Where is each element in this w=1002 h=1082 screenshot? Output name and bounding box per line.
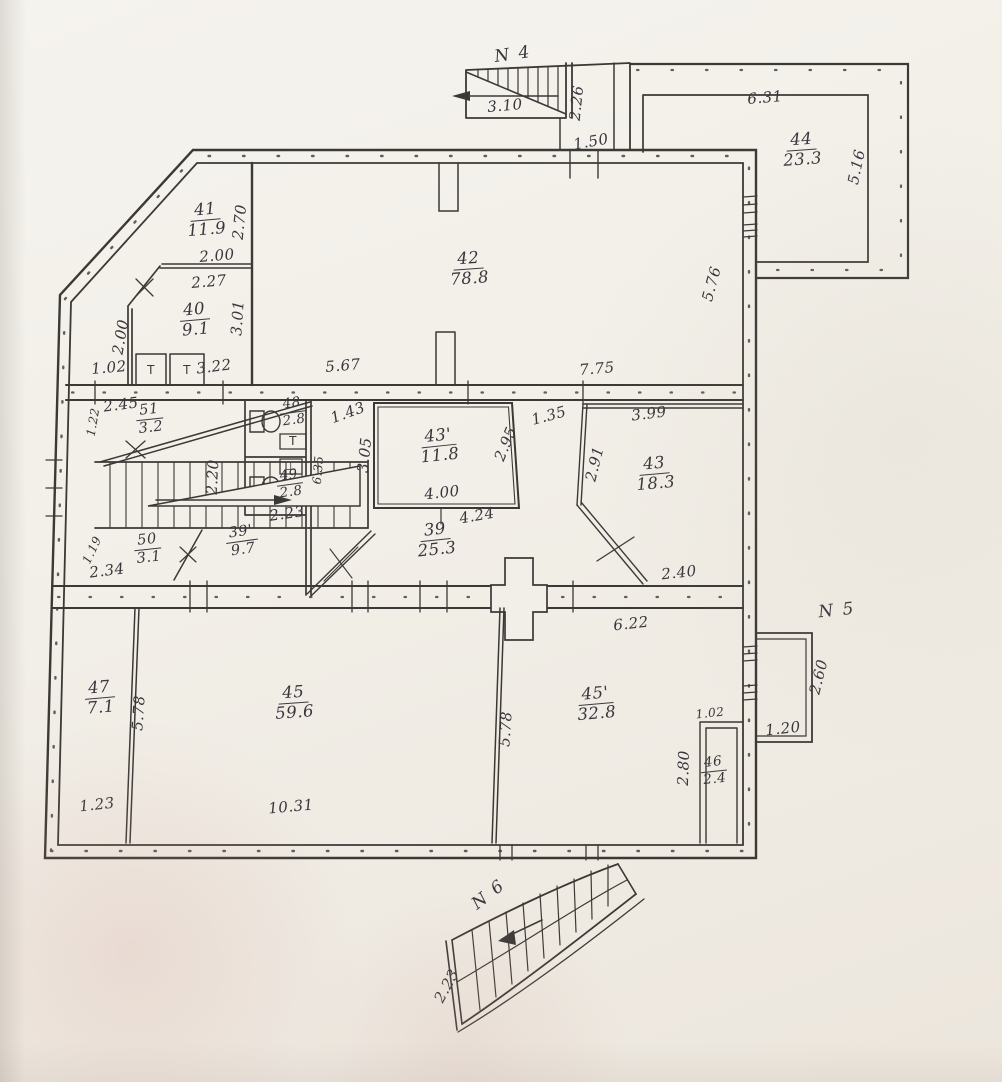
- dim-label: 6.31: [747, 89, 784, 107]
- dim-label: 4.00: [424, 484, 461, 503]
- room-area: 23.3: [783, 150, 823, 171]
- room-area: 2.8: [282, 411, 307, 429]
- dim-label: 3.01: [229, 300, 246, 336]
- dim-label: 6.22: [613, 615, 650, 634]
- vent-tee-icon: ⊥: [286, 460, 297, 472]
- room-label-45p: 45'32.8: [575, 683, 617, 725]
- dim-label: 5.78: [497, 711, 514, 747]
- dim-label: 10.31: [268, 798, 315, 817]
- dim-label: 2.34: [89, 561, 126, 580]
- room-label-39p: 39'9.7: [224, 522, 260, 561]
- stair-4: [452, 63, 630, 178]
- room-area: 9.1: [181, 320, 210, 341]
- vent-t-icon: T: [147, 364, 155, 376]
- dim-label: 1.02: [695, 706, 725, 721]
- room-label-39: 3925.3: [415, 519, 458, 562]
- room-label-51: 513.2: [135, 400, 166, 437]
- room-area: 59.6: [275, 703, 315, 724]
- room-label-48: 482.8: [278, 394, 308, 430]
- room-area: 2.4: [703, 771, 727, 788]
- room-43-walls: [577, 404, 743, 584]
- dim-label: 2.20: [205, 459, 222, 495]
- dim-label: 1.20: [765, 720, 802, 739]
- room-label-43p: 43'11.8: [418, 425, 461, 468]
- upper-corridor: [66, 354, 743, 404]
- floorplan-page: N 4 N 5 N 6 4111.9 409.1 4278.8 4423.3 5…: [0, 0, 1002, 1082]
- room-area: 2.8: [279, 483, 304, 501]
- vent-t-icon: T: [289, 435, 297, 447]
- dim-label: 5.67: [325, 357, 362, 375]
- room-area: 32.8: [577, 703, 617, 725]
- room-area: 3.1: [136, 549, 162, 568]
- dim-label: 2.00: [199, 247, 236, 265]
- room-label-47: 477.1: [83, 677, 116, 718]
- bottom-rooms-walls: [126, 608, 757, 843]
- room-label-46: 462.4: [699, 754, 728, 789]
- dim-label: 7.75: [579, 360, 616, 378]
- vent-t-icon: T: [183, 364, 191, 376]
- dim-label: 2.40: [661, 564, 698, 583]
- dim-label: 3.99: [631, 404, 668, 423]
- room-area: 18.3: [636, 473, 676, 495]
- room-label-40: 409.1: [178, 299, 211, 340]
- room-label-42: 4278.8: [448, 248, 489, 290]
- dim-label: 6.35: [311, 455, 325, 485]
- room-area: 11.9: [187, 219, 227, 241]
- room-area: 3.2: [138, 419, 164, 438]
- stair-label-5: N 5: [818, 601, 857, 622]
- dim-label: 3.10: [487, 97, 524, 115]
- room-label-50: 503.1: [133, 530, 164, 567]
- room-label-41: 4111.9: [185, 199, 227, 241]
- dim-label: 1.23: [79, 796, 116, 815]
- room-label-44: 4423.3: [781, 129, 822, 171]
- dim-label: 3.05: [356, 437, 375, 474]
- dim-label: 2.26: [568, 85, 587, 122]
- dim-label: 5.78: [130, 695, 147, 731]
- room-area: 78.8: [450, 269, 490, 290]
- dim-label: 3.22: [196, 357, 233, 376]
- dim-label: 2.27: [191, 273, 228, 291]
- room-label-45: 4559.6: [273, 682, 314, 724]
- dim-label: 1.02: [91, 359, 128, 377]
- dim-label: 2.45: [103, 395, 140, 414]
- rooms-41-40-walls: [128, 163, 458, 385]
- stair-6: [446, 864, 644, 1032]
- dim-label: 2.80: [676, 750, 692, 786]
- room-area: 7.1: [86, 698, 115, 719]
- room-area: 9.7: [230, 540, 257, 559]
- dim-label: 2.70: [231, 204, 250, 241]
- room-label-43: 4318.3: [634, 453, 676, 495]
